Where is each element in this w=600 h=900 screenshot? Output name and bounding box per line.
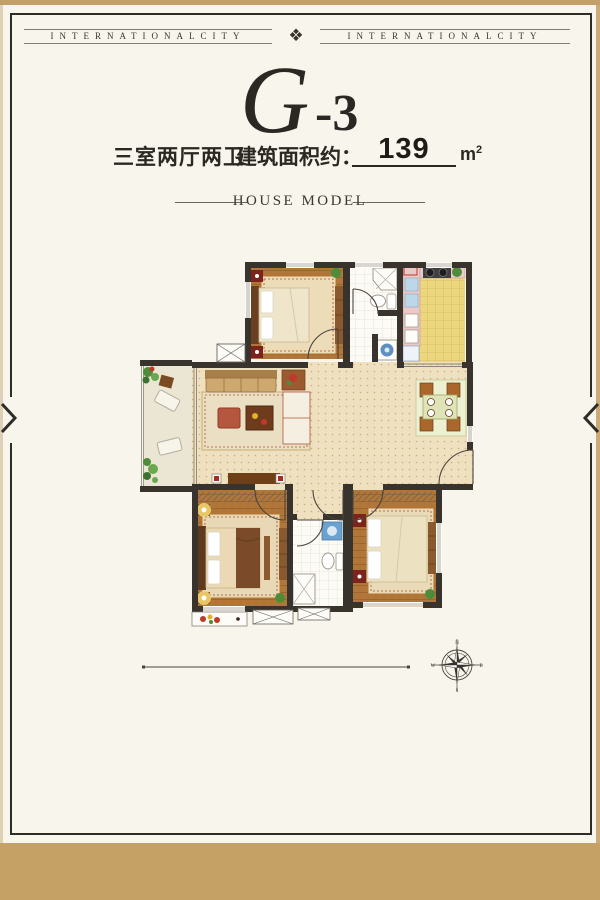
compass-west-label: W — [431, 664, 436, 669]
bedroom-top — [251, 268, 343, 358]
bed-bench — [264, 536, 270, 580]
window — [245, 282, 251, 318]
scale-bar — [138, 660, 418, 674]
pillow — [208, 560, 220, 584]
bay-window — [253, 610, 293, 624]
bed-headboard — [251, 286, 259, 344]
unit-letter: G — [240, 52, 309, 148]
header-brand-left: INTERNATIONALCITY — [24, 30, 272, 42]
wardrobe — [428, 522, 436, 574]
fridge — [403, 346, 419, 361]
toilet-tank — [387, 294, 396, 309]
blanket — [236, 528, 260, 588]
window — [355, 262, 383, 268]
window — [286, 262, 314, 268]
plant-icon — [331, 268, 341, 278]
window — [436, 523, 442, 573]
area-label: 建筑面积约： — [236, 141, 362, 171]
window — [363, 602, 423, 608]
plant-icon — [275, 593, 285, 603]
pillow — [368, 519, 381, 547]
header-rule-left-bottom — [24, 43, 272, 44]
ac-platform — [217, 344, 245, 362]
flyer-page: { "header": { "left_text": "INTERNATIONA… — [0, 0, 600, 900]
coffee-table — [246, 406, 273, 430]
pillow — [261, 291, 273, 313]
top-edge-band — [0, 0, 600, 5]
bay-window — [298, 608, 330, 620]
header-ornament-icon: ❖ — [287, 27, 305, 45]
house-model-label: HOUSE MODEL — [0, 193, 600, 210]
compass-north-label: N — [455, 641, 459, 646]
flower-bay — [192, 612, 247, 626]
closet-strip — [353, 492, 436, 502]
toilet-icon — [371, 295, 386, 307]
pillow — [208, 532, 220, 556]
compass-east-label: E — [479, 664, 482, 669]
ladybug-icon — [236, 617, 240, 621]
bottom-band — [0, 843, 600, 900]
plant-icon — [452, 267, 462, 277]
window — [426, 262, 452, 268]
bed-headboard — [198, 526, 206, 590]
floorplan — [140, 256, 478, 628]
plant-icon — [425, 589, 435, 599]
window — [467, 426, 473, 442]
room-layout-text: 三室两厅两卫 — [113, 141, 245, 171]
compass-rose-icon: N E S W — [429, 637, 485, 693]
area-unit: m2 — [460, 144, 482, 165]
next-page-chevron[interactable] — [582, 400, 600, 436]
compass-south-label: S — [456, 689, 459, 693]
armchair — [218, 408, 240, 428]
header-brand-right: INTERNATIONALCITY — [320, 30, 570, 42]
closet-strip — [198, 492, 287, 502]
window — [203, 606, 245, 612]
sofa-back — [205, 370, 277, 379]
toilet-tank — [336, 553, 343, 570]
pillow — [261, 317, 273, 339]
header-rule-right-bottom — [320, 43, 570, 44]
area-value: 139 — [352, 133, 456, 166]
prev-page-chevron[interactable] — [0, 400, 18, 436]
dining-area — [416, 380, 466, 436]
sink — [405, 278, 418, 291]
pillow — [368, 551, 381, 579]
tv-cabinet — [228, 473, 280, 484]
toilet-icon — [322, 553, 334, 569]
